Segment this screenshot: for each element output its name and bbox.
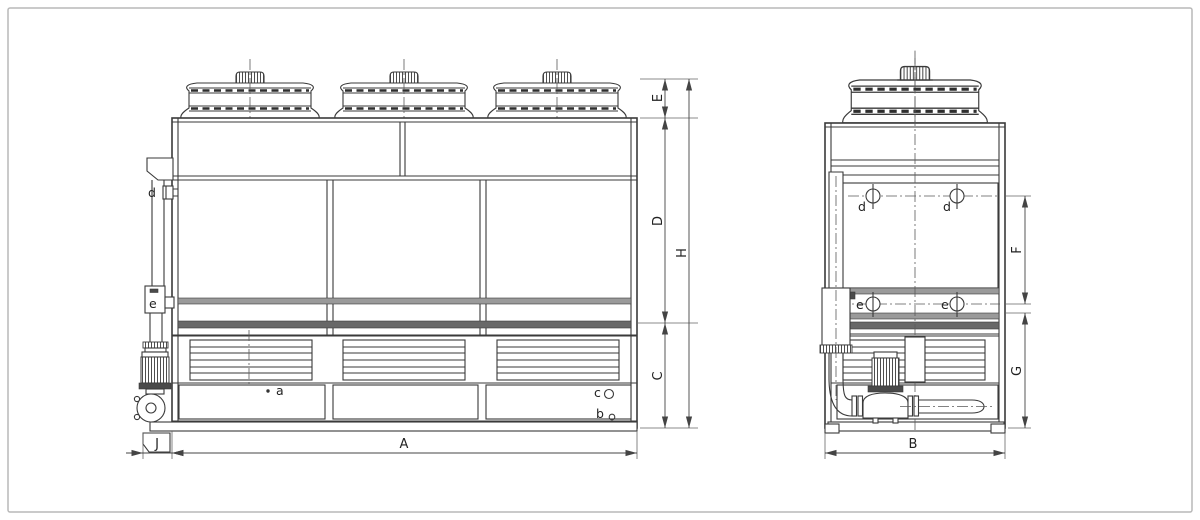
port-e-label: e — [149, 296, 157, 311]
dim-label-B: B — [909, 437, 918, 452]
louver-panel-1 — [190, 340, 312, 380]
dim-label-E: E — [651, 94, 666, 102]
technical-drawing-canvas: a c b d e — [0, 0, 1200, 520]
front-basin: a c b — [179, 383, 631, 421]
dim-label-J: J — [154, 437, 159, 452]
dim-label-A: A — [400, 437, 409, 452]
front-fan-cowls — [181, 59, 626, 124]
front-pump-motor — [139, 352, 171, 394]
base-rail — [150, 422, 637, 431]
side-pump-motor — [868, 352, 903, 392]
louver-panel-2 — [343, 340, 465, 380]
upper-rail-band — [178, 298, 631, 304]
front-view: a c b d e — [126, 59, 698, 459]
port-e-flange — [165, 297, 174, 308]
side-view: d d e e — [820, 51, 1031, 459]
fan-cowl-3 — [488, 59, 626, 124]
top-bracket — [147, 158, 173, 180]
port-a-mark — [266, 389, 269, 392]
dim-label-G: G — [1010, 366, 1025, 376]
front-pump-volute — [134, 394, 165, 422]
side-louvers — [843, 337, 985, 382]
port-d-flange — [163, 186, 173, 199]
port-b-label: b — [596, 406, 604, 421]
fan-cowl-2 — [335, 59, 473, 124]
dim-label-D: D — [651, 216, 666, 226]
side-louver-post — [905, 337, 925, 382]
side-port-e-right-label: e — [941, 297, 949, 312]
dim-label-H: H — [675, 248, 690, 258]
side-port-e-left-label: e — [856, 297, 864, 312]
side-base-foot-left — [825, 424, 839, 433]
dim-label-C: C — [651, 371, 666, 380]
side-base-foot-right — [991, 424, 1005, 433]
lower-rail-band — [178, 321, 631, 328]
louver-panel-3 — [497, 340, 619, 380]
fan-cowl-1 — [181, 59, 319, 124]
side-port-d-right-label: d — [943, 199, 951, 214]
port-a-label: a — [276, 383, 284, 398]
port-d-label: d — [148, 185, 156, 200]
side-base-rail — [828, 422, 1004, 431]
pipe-flange — [143, 342, 168, 348]
dim-label-F: F — [1010, 246, 1025, 253]
side-port-d-left-label: d — [858, 199, 866, 214]
port-c-label: c — [594, 385, 601, 400]
side-louver-panel-2 — [925, 340, 985, 380]
